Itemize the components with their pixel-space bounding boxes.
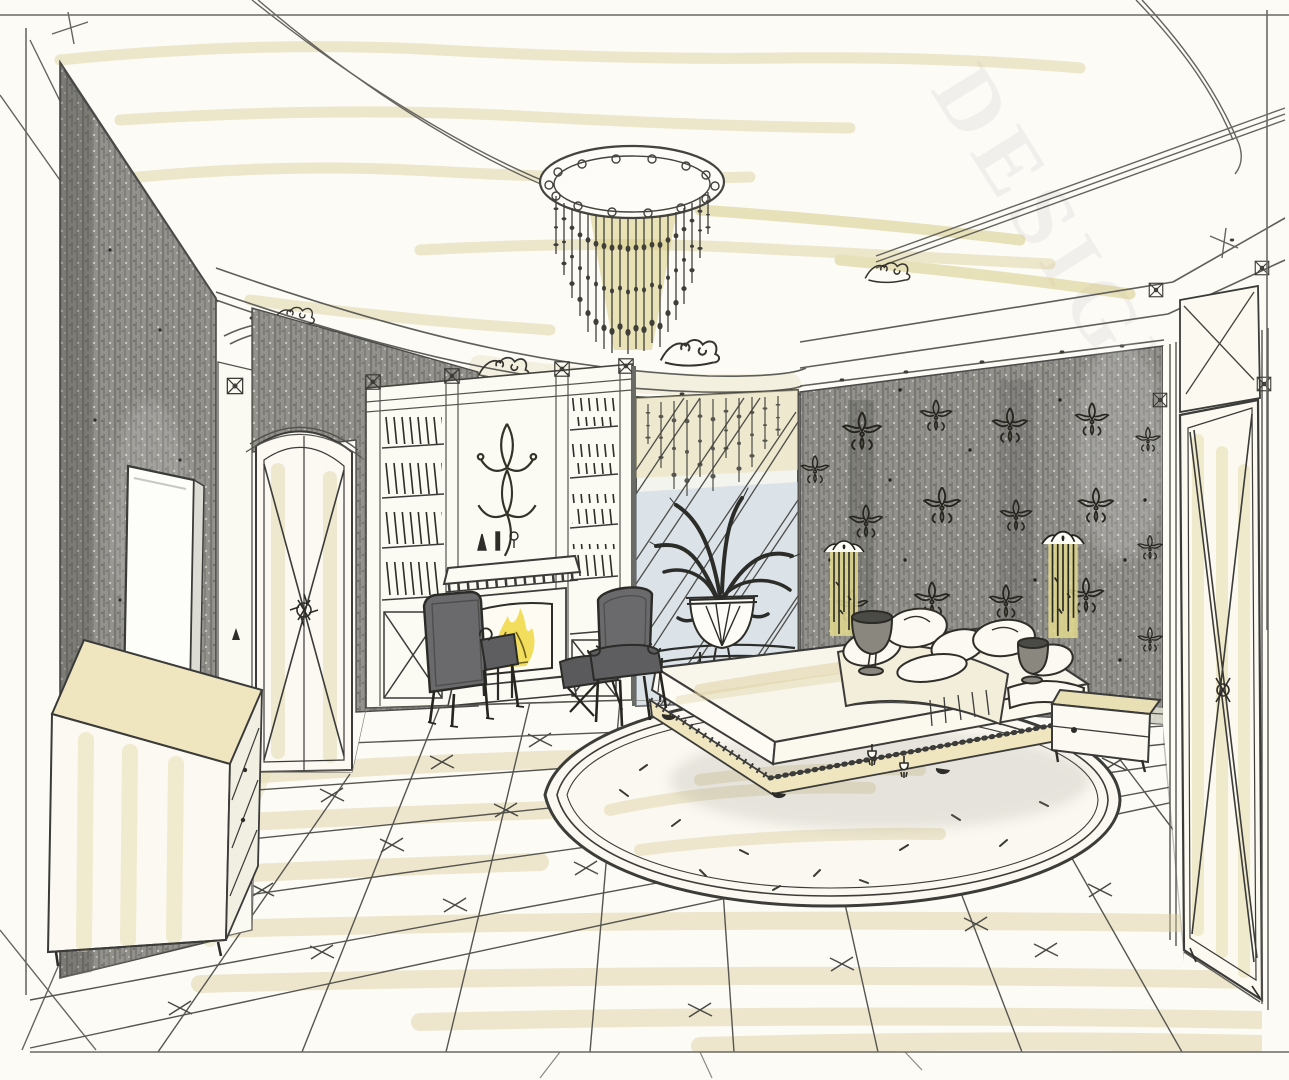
dresser [48, 640, 262, 966]
ceiling-medallion [540, 146, 724, 218]
transom-panel [1180, 286, 1260, 412]
sconce-right [1042, 532, 1084, 638]
interior-sketch-page: DESIGN.R [0, 0, 1289, 1080]
overrun-lines [540, 1052, 922, 1078]
arched-door [246, 427, 362, 772]
right-door [1149, 261, 1271, 1010]
interior-sketch: DESIGN.R [0, 0, 1289, 1080]
cornice-scroll-ornament [661, 340, 719, 366]
drawer-knob [1071, 727, 1077, 733]
